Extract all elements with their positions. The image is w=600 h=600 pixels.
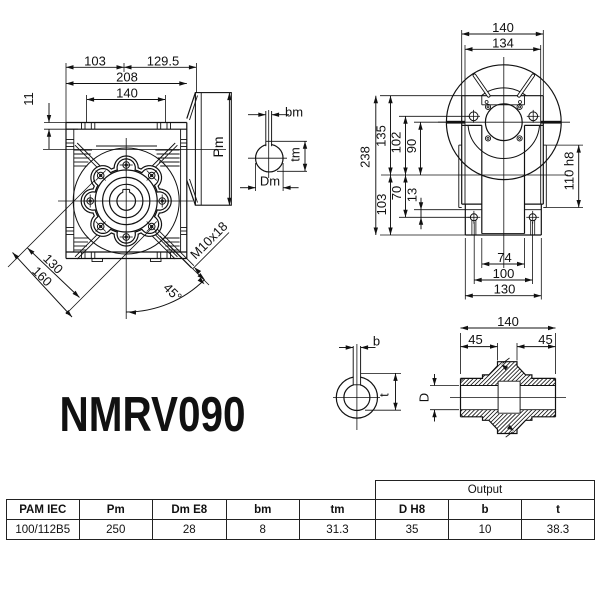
svg-text:134: 134 <box>492 35 514 50</box>
svg-text:13: 13 <box>405 188 420 202</box>
svg-text:t: t <box>377 393 392 397</box>
svg-text:102: 102 <box>389 132 404 154</box>
svg-text:45: 45 <box>468 332 482 347</box>
svg-text:110 h8: 110 h8 <box>562 152 577 191</box>
svg-text:140: 140 <box>497 314 519 329</box>
svg-text:103: 103 <box>374 194 389 216</box>
svg-text:140: 140 <box>116 86 138 101</box>
svg-text:Dm: Dm <box>260 174 280 189</box>
svg-text:129.5: 129.5 <box>147 53 180 68</box>
svg-text:208: 208 <box>116 70 138 85</box>
svg-text:NMRV090: NMRV090 <box>60 388 246 442</box>
svg-text:74: 74 <box>497 250 511 265</box>
svg-text:M10x18: M10x18 <box>187 219 230 262</box>
svg-text:70: 70 <box>389 186 404 200</box>
svg-text:45: 45 <box>538 332 552 347</box>
svg-text:135: 135 <box>374 125 389 147</box>
svg-text:238: 238 <box>358 146 373 168</box>
svg-text:45°: 45° <box>160 280 185 305</box>
svg-text:11: 11 <box>21 92 36 106</box>
svg-text:Pm: Pm <box>210 137 226 158</box>
svg-text:D: D <box>417 393 432 402</box>
svg-text:140: 140 <box>492 20 514 35</box>
svg-text:103: 103 <box>84 53 106 68</box>
svg-text:90: 90 <box>404 139 419 153</box>
svg-text:bm: bm <box>285 105 303 120</box>
svg-text:100: 100 <box>493 266 515 281</box>
svg-text:tm: tm <box>288 147 303 161</box>
svg-text:b: b <box>373 334 380 349</box>
svg-text:130: 130 <box>494 282 516 297</box>
